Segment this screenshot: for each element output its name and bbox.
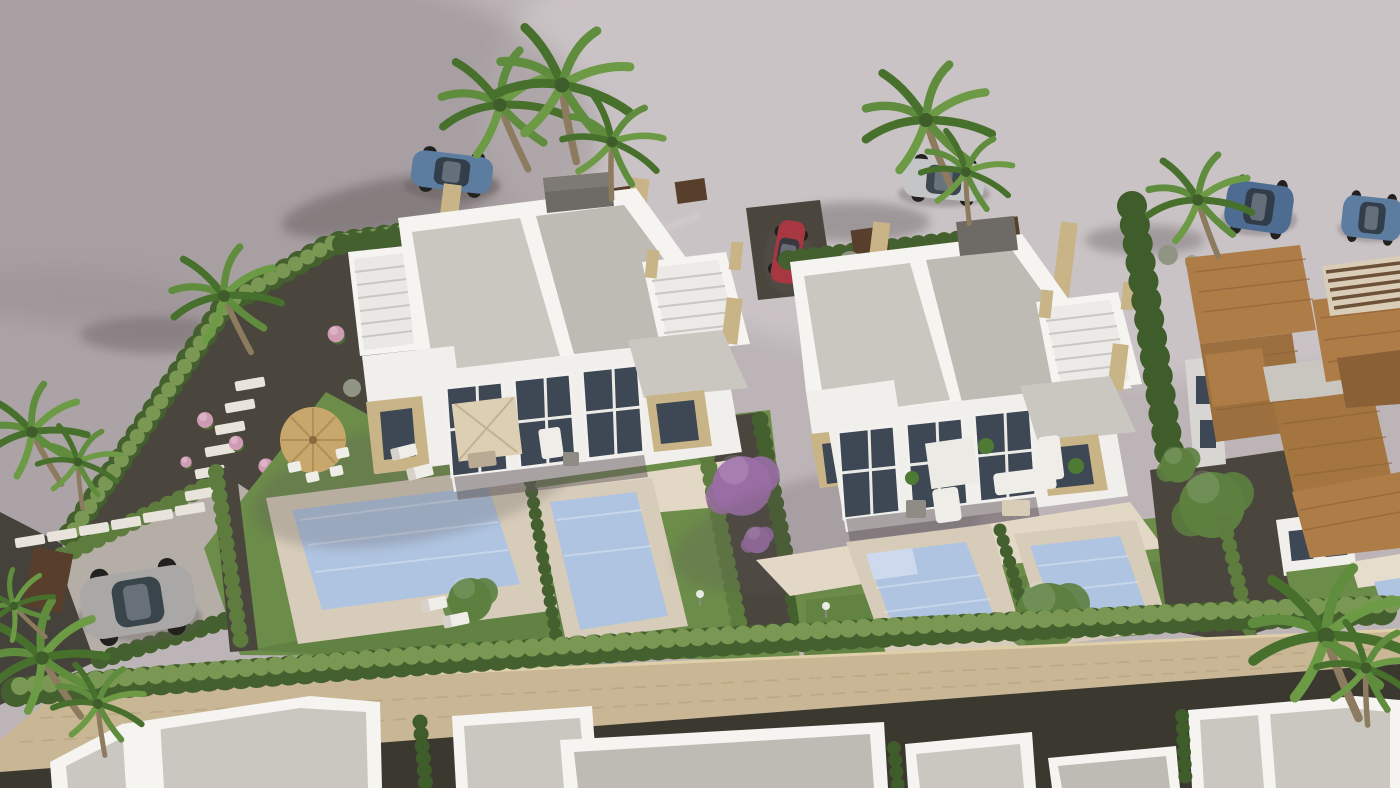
potted-plant [1068, 458, 1084, 474]
aerial-render [0, 0, 1400, 788]
chimney-box [956, 216, 1018, 256]
pergola [1322, 256, 1400, 316]
brown-fence [675, 178, 708, 204]
gray-bush [343, 379, 361, 397]
annex-window-right [656, 400, 699, 444]
side-table [563, 452, 579, 466]
wicker-sofa [932, 486, 962, 523]
potted-plant [978, 438, 994, 454]
ottoman [1002, 500, 1030, 516]
render-viewport [0, 0, 1400, 788]
white-parasol [925, 437, 979, 489]
roof-stairs-right [1036, 281, 1142, 394]
divider-hedge [1182, 716, 1186, 788]
fire-table [906, 500, 926, 518]
wicker-sofa [538, 427, 564, 460]
blue-car-far-right [1339, 189, 1400, 247]
divider-hedge [420, 722, 426, 788]
divider-hedge [894, 748, 898, 788]
gray-bush [1158, 245, 1178, 265]
potted-plant [905, 471, 919, 485]
